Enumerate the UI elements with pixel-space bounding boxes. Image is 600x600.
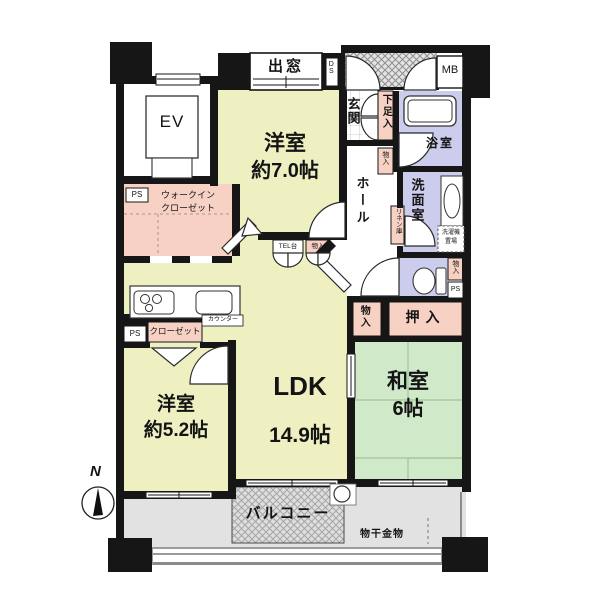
toilet-bowl <box>413 268 435 294</box>
floor-plan: N EV 出窓 DS MB 玄関 下足入 浴室 ホール 物入 リネン庫 洗面室 … <box>0 0 600 600</box>
mb-label: MB <box>437 64 463 76</box>
washer-label-2: 置場 <box>439 239 463 246</box>
washroom-label: 洗面室 <box>409 178 424 223</box>
wic-label-2: クローゼット <box>148 203 228 213</box>
sink <box>196 291 232 314</box>
compass <box>82 487 114 519</box>
bathroom-label: 浴室 <box>418 137 462 150</box>
counter-label: カウンター <box>203 317 243 324</box>
western5-size: 約5.2帖 <box>126 420 226 441</box>
pillar-bottom-left <box>108 538 152 572</box>
ldk-size: 14.9帖 <box>252 424 348 448</box>
western5-name: 洋室 <box>126 394 226 415</box>
bay-window-label: 出窓 <box>252 59 320 76</box>
japanese-size: 6帖 <box>370 398 446 420</box>
wic-label-1: ウォークイン <box>148 190 228 200</box>
washer-label-1: 洗濯機 <box>439 230 463 237</box>
oshiire-label: 押入 <box>389 310 462 326</box>
shoe-cabinet-label: 下足入 <box>380 94 391 130</box>
entrance-label: 玄関 <box>345 97 360 125</box>
laundry-hardware-label: 物干金物 <box>360 529 404 540</box>
ps-wic-label: PS <box>126 191 148 200</box>
hall-storage-label: 物入 <box>381 151 389 165</box>
toilet-storage-label: 物入 <box>451 260 459 274</box>
closet-label: クローゼット <box>148 327 202 337</box>
ps-kitchen-label: PS <box>124 330 146 339</box>
tel-storage-label: 物入 <box>306 243 330 250</box>
western7-size: 約7.0帖 <box>230 160 340 182</box>
tel-stand-label: TEL台 <box>273 243 303 250</box>
pillar-top-right <box>462 45 490 98</box>
linen-label: リネン庫 <box>394 208 401 234</box>
hall-label: ホール <box>354 176 369 227</box>
western7-name: 洋室 <box>230 132 340 156</box>
pillar-bottom-right <box>442 537 488 572</box>
balcony-drain <box>334 486 350 502</box>
ps-toilet-label: PS <box>448 286 463 294</box>
ldk-storage-label: 物入 <box>358 305 369 329</box>
japanese-name: 和室 <box>370 370 446 394</box>
ds-label: DS <box>327 61 335 75</box>
balcony-label: バルコニー <box>238 506 338 523</box>
compass-north-label: N <box>90 464 101 481</box>
ev-label: EV <box>146 112 198 131</box>
ldk-name: LDK <box>252 372 348 401</box>
